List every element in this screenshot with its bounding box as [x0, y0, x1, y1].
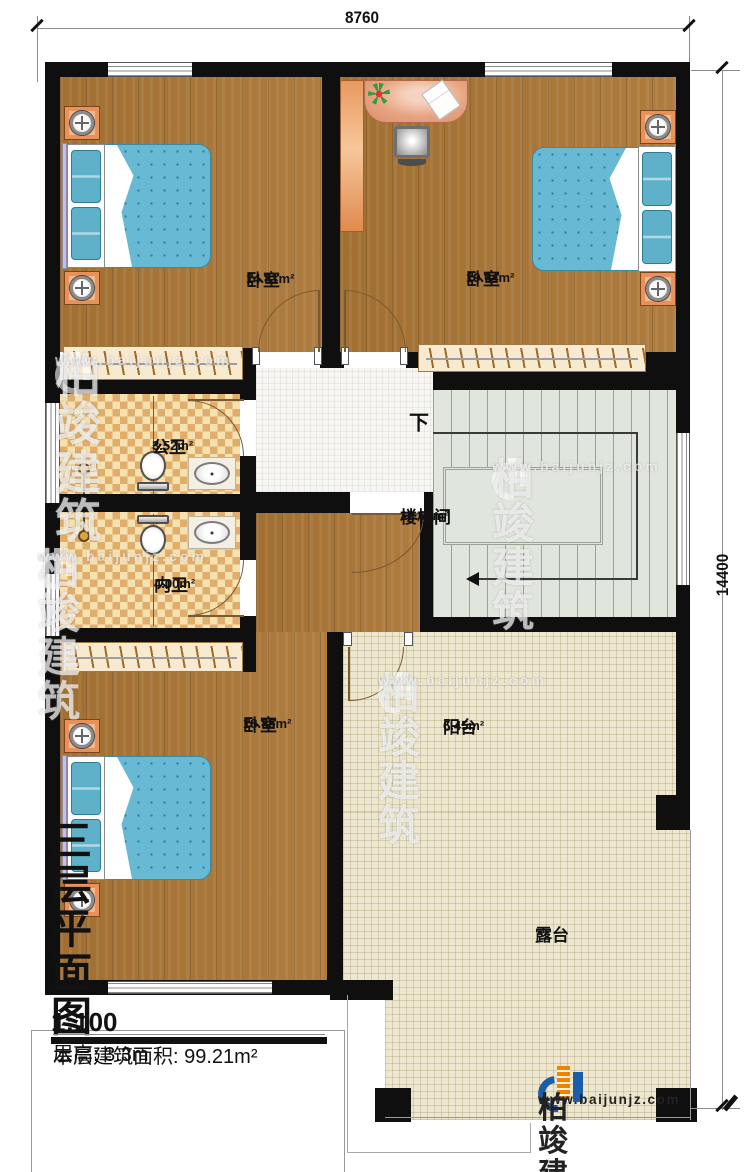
closet	[418, 344, 646, 372]
column	[656, 795, 690, 830]
toilet-tank	[137, 515, 169, 524]
wall-segment	[45, 628, 256, 642]
sink-icon	[194, 521, 230, 544]
lamp-icon	[646, 115, 670, 139]
sink-icon	[194, 462, 230, 485]
closet-rail	[69, 657, 236, 659]
floor-height-text: 层高: 3.3m	[53, 1038, 149, 1067]
wall-segment	[243, 628, 256, 672]
plant-icon	[368, 83, 390, 105]
shower-head-icon	[78, 463, 90, 475]
wall-segment	[240, 616, 256, 628]
window	[485, 62, 612, 77]
shower-rail	[83, 510, 85, 530]
stair-landing	[443, 467, 603, 545]
wall-segment	[320, 352, 340, 368]
lower-floor-outline	[530, 1123, 531, 1153]
stair-guide-line	[636, 432, 638, 580]
nightstand	[64, 271, 100, 305]
monitor-stand	[398, 159, 426, 166]
pillow	[642, 152, 672, 206]
closet	[63, 346, 243, 380]
closet-rail	[69, 363, 236, 365]
title-block: 三层平面图 1:100 本层建筑面积: 99.21m² 层高: 3.3m	[31, 1030, 345, 1172]
window	[108, 62, 192, 77]
wall-segment	[256, 492, 350, 513]
pillow	[71, 762, 101, 815]
stair-guide-line	[433, 432, 638, 434]
door-jamb	[343, 632, 352, 646]
computer-monitor-icon	[394, 126, 430, 158]
wall-segment	[420, 617, 676, 632]
stair-guide-line	[478, 578, 638, 580]
window	[108, 981, 272, 994]
stair-down-label: 下	[409, 407, 429, 436]
window	[45, 574, 60, 636]
floor-plan: 下 卧室14.81m² 卧室19.64m² 公卫3.52m² 内卫4.00m² …	[0, 0, 750, 1172]
company-website: www.baijunjz.com	[538, 1092, 680, 1107]
nightstand	[640, 272, 676, 306]
wall-segment	[322, 62, 340, 354]
terrace-floor-upper	[343, 812, 690, 995]
stair-direction-arrow	[466, 572, 479, 586]
nightstand	[64, 719, 100, 753]
dimension-line	[37, 28, 687, 29]
toilet-icon	[140, 525, 166, 555]
door-leaf	[188, 615, 244, 617]
terrace-railing	[690, 830, 691, 1120]
door-leaf	[348, 647, 350, 701]
pillow	[71, 207, 101, 260]
pillow	[642, 210, 672, 264]
wall-segment	[327, 632, 343, 995]
window	[45, 403, 60, 503]
door-leaf	[188, 399, 244, 401]
lamp-icon	[70, 724, 94, 748]
door-leaf	[344, 290, 346, 352]
dimension-right-value: 14400	[713, 550, 731, 600]
wardrobe	[340, 80, 364, 232]
lamp-icon	[70, 276, 94, 300]
door-leaf	[318, 290, 320, 352]
wall-segment	[330, 980, 393, 1000]
title-rule-thin	[53, 1034, 325, 1035]
wall-segment	[45, 380, 256, 394]
wall-segment	[420, 513, 433, 632]
shower-head-icon	[78, 530, 90, 542]
lamp-icon	[70, 111, 94, 135]
pillow	[71, 150, 101, 203]
dimension-top-value: 8760	[335, 8, 389, 26]
lower-floor-outline	[347, 995, 348, 1153]
toilet-tank	[137, 482, 169, 491]
closet-rail	[426, 358, 638, 360]
closet	[63, 642, 243, 672]
nightstand	[64, 106, 100, 140]
wall-segment	[45, 494, 256, 512]
window	[676, 433, 690, 585]
lamp-icon	[646, 277, 670, 301]
nightstand	[640, 110, 676, 144]
door-jamb	[404, 632, 413, 646]
lower-floor-outline	[347, 1152, 531, 1153]
hallway-floor	[256, 368, 433, 492]
